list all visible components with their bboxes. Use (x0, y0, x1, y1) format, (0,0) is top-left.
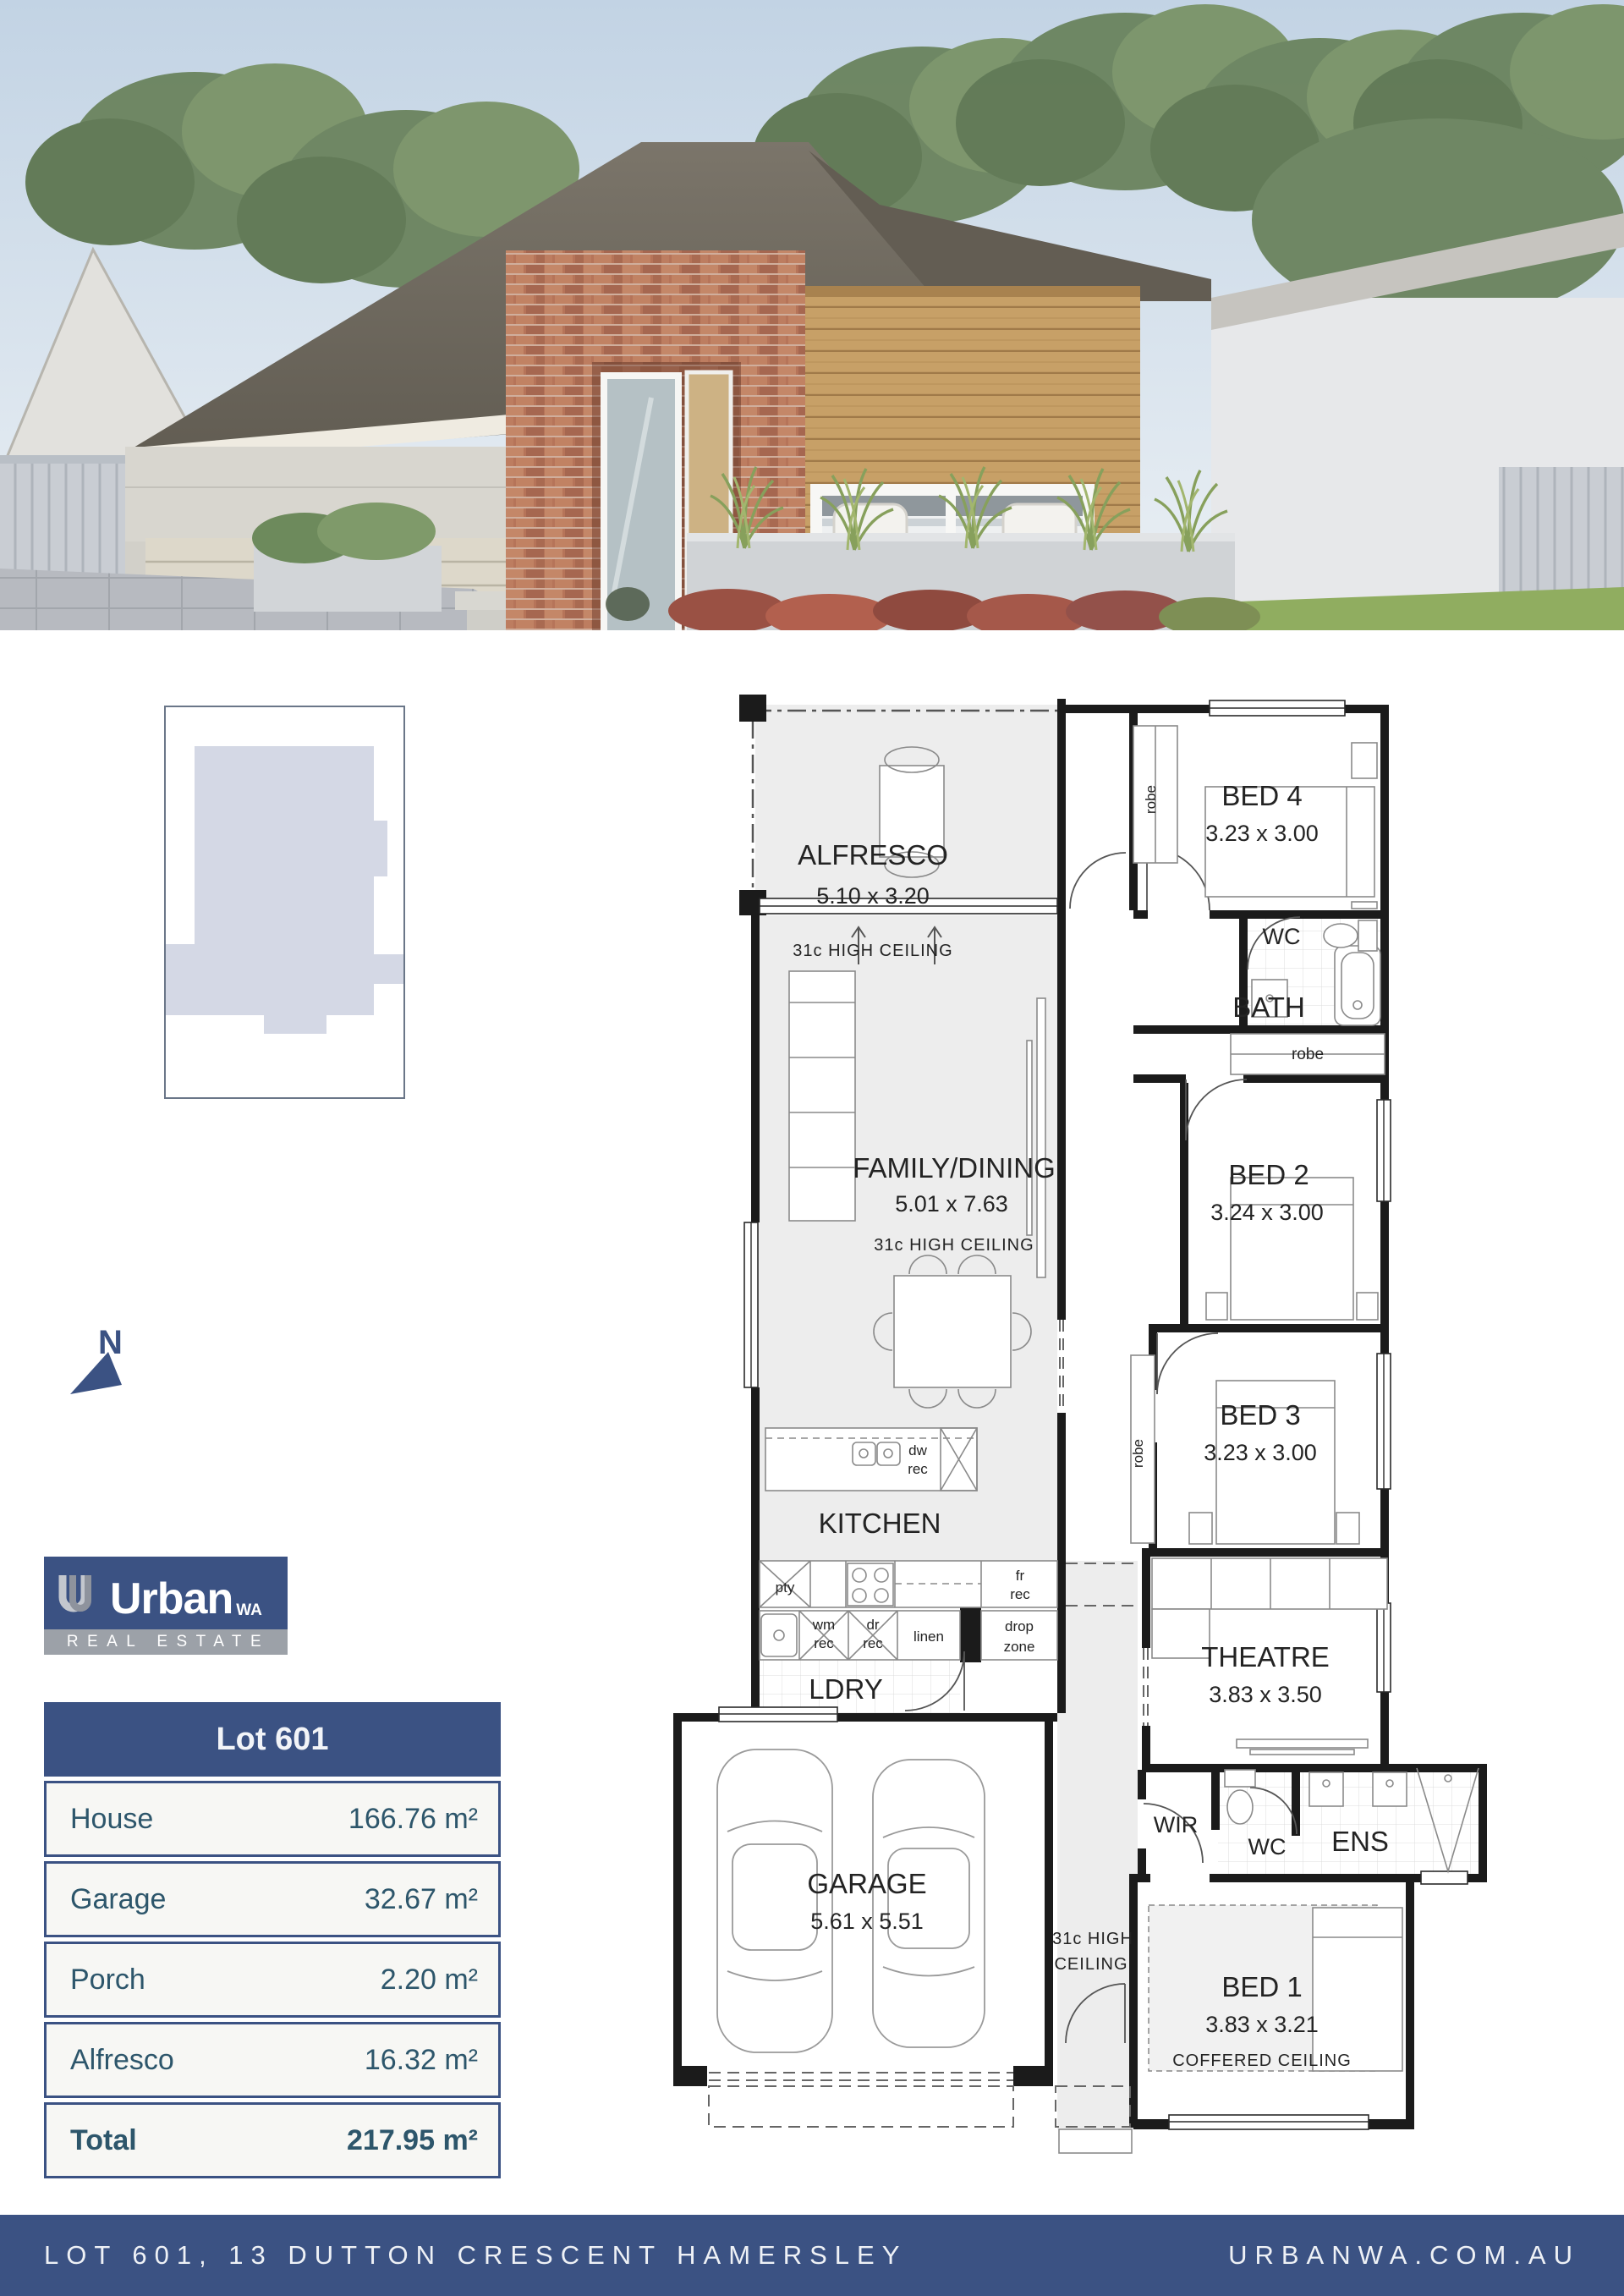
table-row-house: House 166.76 m² (44, 1781, 501, 1857)
row-value: 217.95 m² (347, 2124, 498, 2157)
room-bed3: BED 3 (1220, 1399, 1300, 1431)
footer-address: LOT 601, 13 DUTTON CRESCENT HAMERSLEY (44, 2240, 907, 2271)
footer-website-link[interactable]: URBANWA.COM.AU (1228, 2240, 1580, 2271)
urban-wa-logo: Urban WA REAL ESTATE (44, 1557, 288, 1655)
tag-zone: zone (1004, 1639, 1035, 1655)
row-value: 32.67 m² (365, 1883, 498, 1916)
flyer-page: N (0, 0, 1624, 2296)
tag-wm-rec: rec (814, 1635, 834, 1651)
logo-tagline: REAL ESTATE (44, 1629, 288, 1655)
room-wir: WIR (1154, 1812, 1198, 1837)
room-bed2-dims: 3.24 x 3.00 (1210, 1200, 1324, 1225)
row-label: Alfresco (47, 2044, 174, 2077)
room-theatre: THEATRE (1201, 1641, 1330, 1673)
logo-region: WA (236, 1602, 262, 1621)
tag-robe-bed4: robe (1143, 785, 1159, 814)
room-family-note: 31c HIGH CEILING (874, 1236, 1034, 1255)
room-bed1-dims: 3.83 x 3.21 (1205, 2012, 1319, 2037)
tag-dr-rec: rec (863, 1635, 883, 1651)
site-plan: N (0, 677, 592, 1438)
tag-drop: drop (1005, 1618, 1034, 1634)
hall-floor (1057, 1561, 1138, 2129)
areas-table-header: Lot 601 (44, 1702, 501, 1777)
north-label: N (98, 1324, 123, 1361)
row-value: 2.20 m² (381, 1964, 498, 1997)
floor-plan: ALFRESCO 5.10 x 3.20 31c HIGH CEILING FA… (651, 682, 1506, 2174)
room-bed4: BED 4 (1221, 780, 1302, 811)
room-bed1-note: COFFERED CEILING (1172, 2052, 1352, 2070)
tag-linen: linen (913, 1629, 944, 1645)
room-family-dims: 5.01 x 7.63 (895, 1191, 1008, 1217)
room-bed2: BED 2 (1228, 1159, 1309, 1190)
room-garage-dims: 5.61 x 5.51 (810, 1909, 924, 1934)
room-alfresco-dims: 5.10 x 3.20 (816, 883, 930, 909)
room-kitchen: KITCHEN (819, 1508, 941, 1539)
row-value: 16.32 m² (365, 2044, 498, 2077)
tag-fr: fr (1016, 1568, 1025, 1584)
room-wc-lower: WC (1248, 1834, 1287, 1859)
tag-dw-rec: rec (908, 1461, 928, 1477)
room-bath: BATH (1232, 991, 1305, 1023)
row-label: House (47, 1803, 153, 1836)
tag-dr: dr (866, 1617, 879, 1633)
room-bed3-dims: 3.23 x 3.00 (1204, 1440, 1317, 1465)
tag-robe-bed3: robe (1130, 1439, 1146, 1468)
tag-fr-rec: rec (1010, 1586, 1030, 1602)
row-value: 166.76 m² (348, 1803, 498, 1836)
row-label: Porch (47, 1964, 145, 1997)
room-bed4-dims: 3.23 x 3.00 (1205, 821, 1319, 846)
room-ens: ENS (1331, 1826, 1389, 1857)
room-family: FAMILY/DINING (853, 1152, 1056, 1184)
tag-robe-bed2: robe (1292, 1046, 1324, 1063)
table-row-total: Total 217.95 m² (44, 2102, 501, 2178)
table-row-porch: Porch 2.20 m² (44, 1942, 501, 2018)
row-label: Garage (47, 1883, 166, 1916)
logo-u-icon (54, 1572, 103, 1621)
room-garage: GARAGE (807, 1868, 926, 1899)
logo-brand: Urban (110, 1577, 233, 1621)
room-theatre-dims: 3.83 x 3.50 (1209, 1682, 1322, 1707)
tag-dw: dw (908, 1442, 927, 1458)
tag-pty: pty (776, 1579, 795, 1596)
logo-navy-panel: Urban WA (44, 1557, 288, 1629)
table-row-alfresco: Alfresco 16.32 m² (44, 2022, 501, 2098)
footer-bar: LOT 601, 13 DUTTON CRESCENT HAMERSLEY UR… (0, 2215, 1624, 2296)
room-wc-upper: WC (1263, 924, 1301, 949)
hall-note-1: 31c HIGH (1052, 1930, 1133, 1948)
areas-table: Lot 601 House 166.76 m² Garage 32.67 m² … (44, 1702, 501, 2178)
table-row-garage: Garage 32.67 m² (44, 1861, 501, 1937)
tag-wm: wm (812, 1617, 835, 1633)
site-plan-footprint (166, 746, 403, 1034)
hero-photo (0, 0, 1624, 630)
room-bed1: BED 1 (1221, 1971, 1302, 2002)
row-label: Total (47, 2124, 137, 2157)
room-alfresco-note: 31c HIGH CEILING (793, 942, 952, 960)
hall-note-2: CEILING (1054, 1955, 1127, 1974)
room-alfresco: ALFRESCO (798, 839, 948, 871)
room-ldry: LDRY (809, 1673, 882, 1705)
